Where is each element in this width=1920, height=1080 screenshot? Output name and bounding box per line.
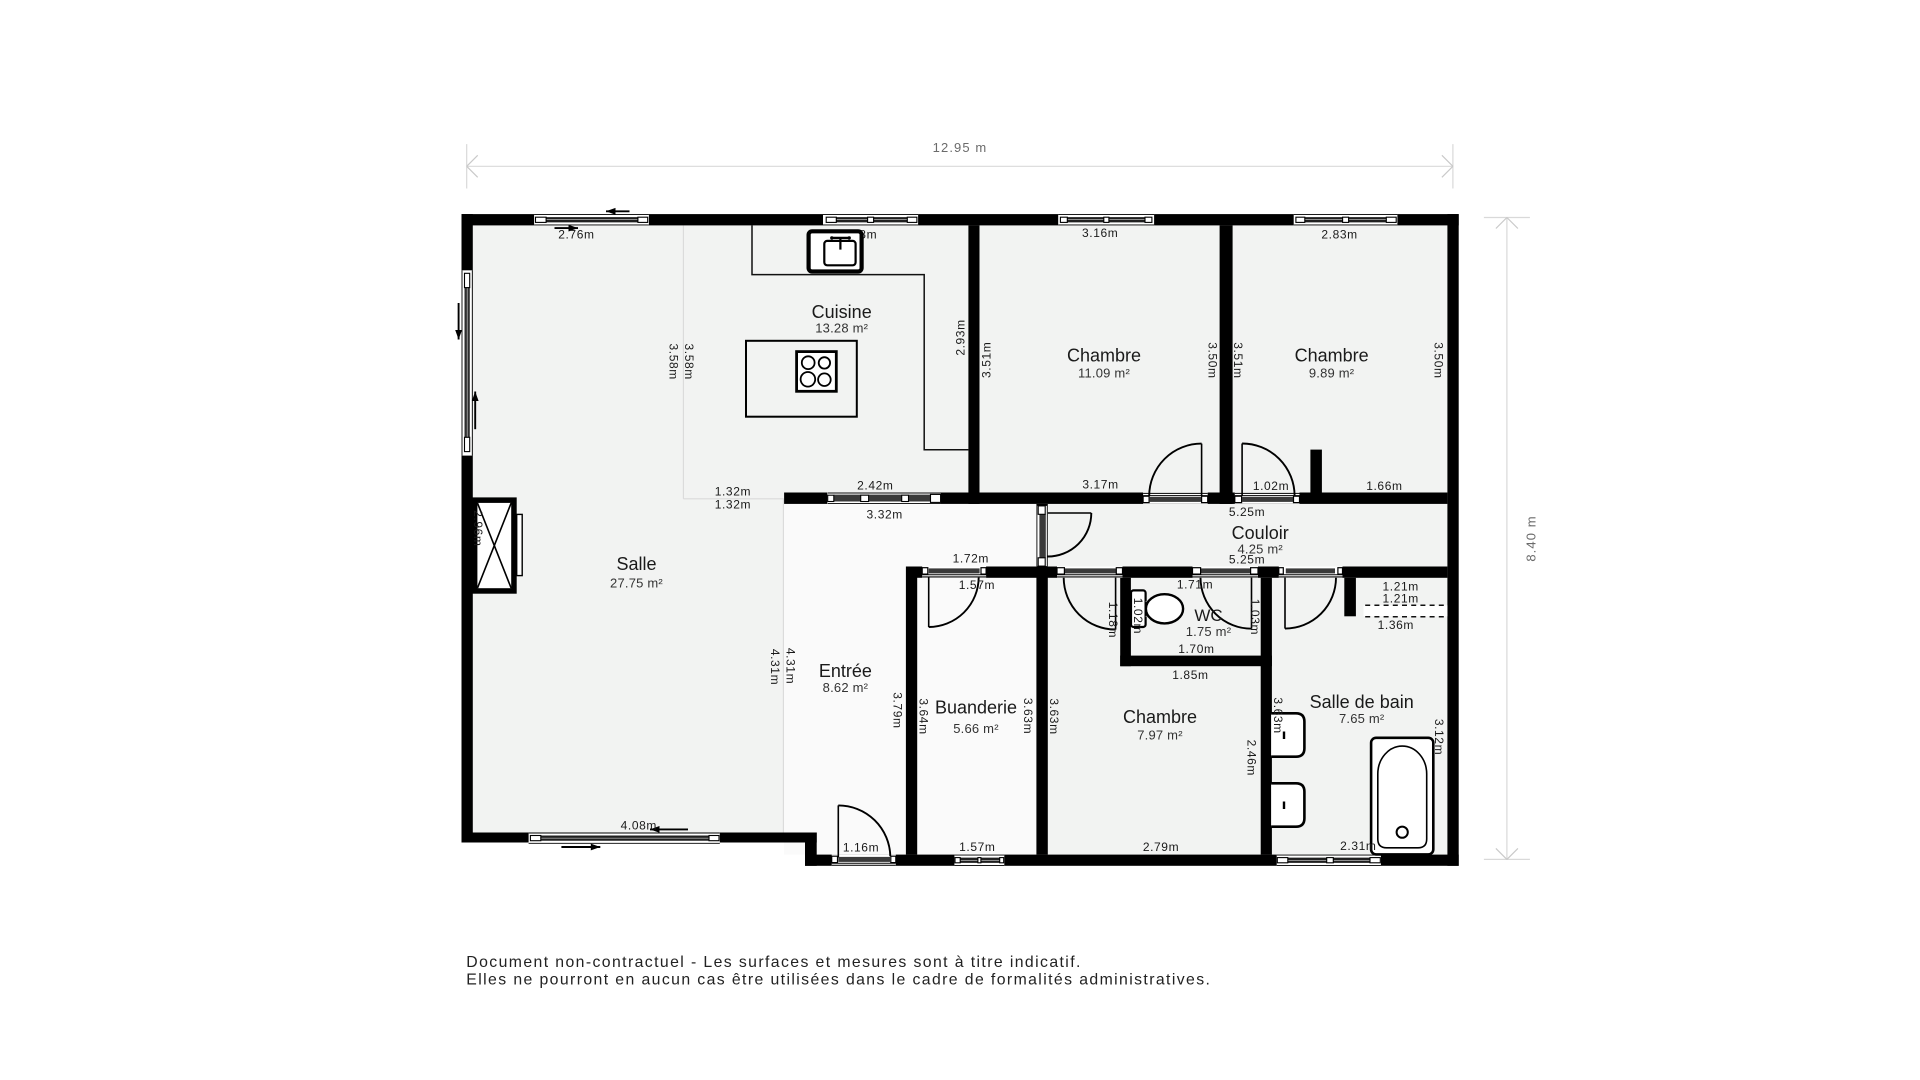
svg-text:1.57m: 1.57m	[959, 578, 995, 592]
svg-text:2.76m: 2.76m	[558, 228, 594, 242]
svg-text:Elles ne pourront en aucun cas: Elles ne pourront en aucun cas être util…	[466, 972, 1211, 989]
svg-text:8.40 m: 8.40 m	[1523, 515, 1538, 561]
svg-text:Chambre: Chambre	[1067, 346, 1141, 366]
svg-text:Chambre: Chambre	[1295, 346, 1369, 366]
svg-text:4.08m: 4.08m	[621, 819, 657, 833]
svg-text:Cuisine: Cuisine	[812, 302, 872, 322]
svg-text:1.02m: 1.02m	[1253, 479, 1289, 493]
svg-text:1.70m: 1.70m	[1178, 642, 1214, 656]
svg-text:Salle: Salle	[616, 554, 656, 574]
svg-text:9.89 m²: 9.89 m²	[1309, 366, 1355, 381]
svg-text:27.75 m²: 27.75 m²	[610, 576, 663, 591]
svg-text:3.32m: 3.32m	[867, 508, 903, 522]
svg-text:3.63m: 3.63m	[1271, 697, 1285, 733]
svg-text:1.18m: 1.18m	[1106, 602, 1120, 638]
svg-text:3.51m: 3.51m	[1231, 342, 1245, 378]
svg-text:2.79m: 2.79m	[1143, 840, 1179, 854]
svg-text:3.58m: 3.58m	[667, 344, 681, 380]
svg-text:2.93m: 2.93m	[954, 319, 968, 355]
svg-text:3.63m: 3.63m	[1021, 698, 1035, 734]
svg-text:4.31m: 4.31m	[768, 649, 782, 685]
svg-text:3.64m: 3.64m	[917, 698, 931, 734]
svg-text:1.72m: 1.72m	[953, 552, 989, 566]
svg-text:Buanderie: Buanderie	[935, 698, 1017, 718]
svg-text:3.58m: 3.58m	[682, 344, 696, 380]
svg-text:1.03m: 1.03m	[1248, 599, 1262, 635]
svg-text:3.63m: 3.63m	[1047, 698, 1061, 734]
svg-text:2.31m: 2.31m	[1340, 839, 1376, 853]
svg-text:Salle de bain: Salle de bain	[1310, 692, 1414, 712]
svg-text:Chambre: Chambre	[1123, 707, 1197, 727]
svg-text:12.95 m: 12.95 m	[933, 140, 988, 155]
svg-text:1.71m: 1.71m	[1177, 578, 1213, 592]
svg-text:1.16m: 1.16m	[843, 841, 879, 855]
svg-text:Document non-contractuel - Les: Document non-contractuel - Les surfaces …	[466, 954, 1081, 971]
svg-text:1.66m: 1.66m	[1366, 479, 1402, 493]
svg-text:1.32m: 1.32m	[715, 485, 751, 499]
svg-text:2.96m: 2.96m	[471, 510, 485, 546]
svg-text:3.50m: 3.50m	[1206, 342, 1220, 378]
svg-text:3.12m: 3.12m	[1432, 719, 1446, 755]
svg-text:1.32m: 1.32m	[715, 498, 751, 512]
svg-text:5.66 m²: 5.66 m²	[953, 721, 999, 736]
svg-text:3.51m: 3.51m	[979, 342, 993, 378]
svg-text:13.28 m²: 13.28 m²	[815, 320, 868, 335]
svg-text:1.36m: 1.36m	[1378, 618, 1414, 632]
svg-text:8.62 m²: 8.62 m²	[823, 680, 869, 695]
svg-text:Couloir: Couloir	[1232, 523, 1289, 543]
svg-text:WC: WC	[1194, 606, 1222, 625]
svg-text:4.31m: 4.31m	[784, 648, 798, 684]
svg-text:3.16m: 3.16m	[1082, 226, 1118, 240]
svg-text:Entrée: Entrée	[819, 661, 872, 681]
svg-text:2.83m: 2.83m	[1321, 228, 1357, 242]
svg-text:7.97 m²: 7.97 m²	[1137, 728, 1183, 743]
svg-text:11.09 m²: 11.09 m²	[1078, 366, 1130, 381]
svg-text:1.85m: 1.85m	[1172, 668, 1208, 682]
svg-text:3.17m: 3.17m	[1082, 478, 1118, 492]
svg-text:1.75 m²: 1.75 m²	[1186, 624, 1232, 639]
svg-text:7.65 m²: 7.65 m²	[1339, 711, 1385, 726]
svg-text:2.42m: 2.42m	[857, 479, 893, 493]
svg-text:2.46m: 2.46m	[1244, 740, 1258, 776]
svg-text:5.25m: 5.25m	[1229, 505, 1265, 519]
svg-text:1.21m: 1.21m	[1383, 591, 1419, 605]
svg-text:3.79m: 3.79m	[891, 692, 905, 728]
svg-text:5.25m: 5.25m	[1229, 553, 1265, 567]
svg-text:3.50m: 3.50m	[1431, 342, 1445, 378]
svg-text:1.57m: 1.57m	[959, 840, 995, 854]
svg-text:1.02m: 1.02m	[1131, 598, 1145, 634]
